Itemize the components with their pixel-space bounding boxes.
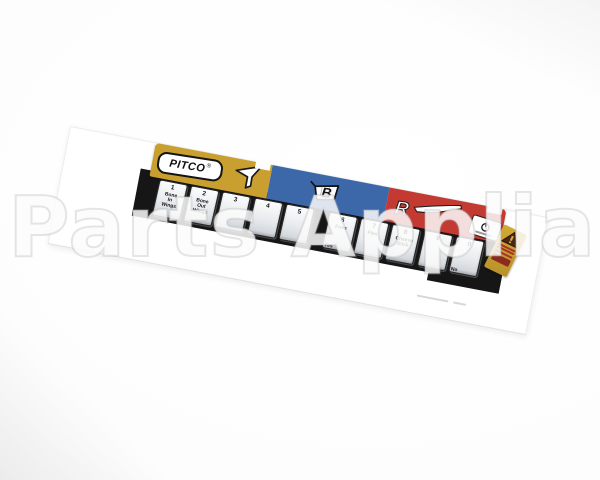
keypad-decal: PITCO® B R <box>124 141 529 327</box>
key-number: 3 <box>225 195 248 205</box>
key-label: Fries <box>332 224 350 232</box>
key-label: BoneOutWings <box>191 197 211 215</box>
key-number: 9 <box>426 233 449 243</box>
keypad-key-3: 3 <box>215 191 252 233</box>
basket-letter: B <box>321 184 333 201</box>
faint-part-print <box>417 295 466 306</box>
keypad-key-7: 7Flex <box>353 218 390 260</box>
keypad-key-9: 9 <box>416 230 453 272</box>
pan-icon: R <box>393 195 468 229</box>
keypad-key-2: 2BoneOutWings <box>183 185 220 227</box>
key-label: CheeseStick <box>394 236 413 249</box>
keypad-key-8: 8CheeseStick <box>385 224 422 266</box>
brand-text: PITCO <box>169 158 207 175</box>
keypad-key-0: 0No <box>448 236 485 278</box>
key-number: 4 <box>256 201 279 211</box>
basket-icon: B <box>305 176 346 208</box>
keypad-key-1: 1BoneInWings <box>152 179 189 221</box>
registered-mark: ® <box>206 163 211 170</box>
key-sub-label: No <box>450 266 458 273</box>
pan-letter: R <box>394 198 411 221</box>
key-number: 0 <box>458 239 481 249</box>
key-label: BoneInWings <box>160 191 180 209</box>
key-label: Flex <box>364 230 382 238</box>
product-photo: PITCO® B R <box>0 0 600 480</box>
key-sub-label: Yes <box>324 242 334 249</box>
keypad-key-4: 4 <box>246 197 283 239</box>
keypad-key-6: 6FriesYes <box>321 212 358 254</box>
keypad-key-5: 5 <box>278 203 315 245</box>
key-number: 5 <box>288 207 311 217</box>
pitco-logo: PITCO® <box>156 151 225 183</box>
